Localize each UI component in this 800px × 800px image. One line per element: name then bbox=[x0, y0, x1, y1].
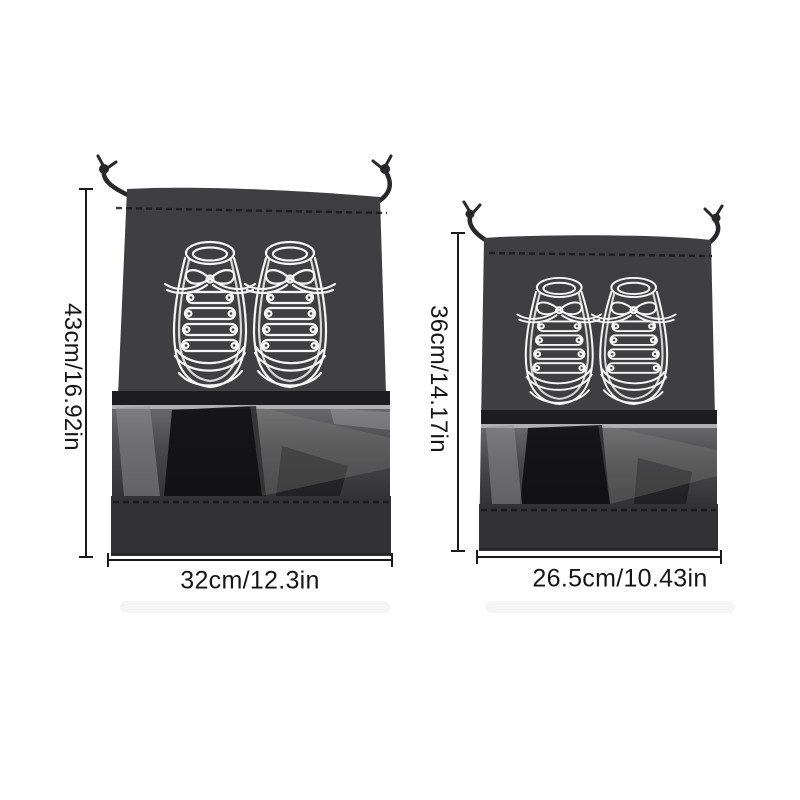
small-bag-height-dimension-line bbox=[451, 233, 465, 551]
small-bag-fold bbox=[481, 410, 717, 424]
small-bag-graphic bbox=[464, 202, 722, 551]
large-bag-bottom-band bbox=[111, 496, 391, 556]
large-bag-height-label: 43cm/16.92in bbox=[58, 303, 86, 451]
bags-illustration bbox=[0, 0, 800, 800]
small-bag-width-label: 26.5cm/10.43in bbox=[532, 565, 707, 594]
large-bag-width-label: 32cm/12.3in bbox=[180, 567, 320, 596]
large-bag-shadow bbox=[120, 601, 390, 613]
small-bag-height-label: 36cm/14.17in bbox=[424, 305, 452, 453]
small-bag-width-dimension-line bbox=[477, 550, 721, 564]
small-bag-shadow bbox=[485, 601, 735, 613]
large-bag-graphic bbox=[98, 156, 391, 556]
shoe-bag-size-diagram: 43cm/16.92in 32cm/12.3in 36cm/14.17in 26… bbox=[0, 0, 800, 800]
large-bag-window bbox=[112, 405, 390, 496]
large-bag-fold bbox=[112, 391, 390, 405]
small-bag-window bbox=[481, 424, 717, 504]
